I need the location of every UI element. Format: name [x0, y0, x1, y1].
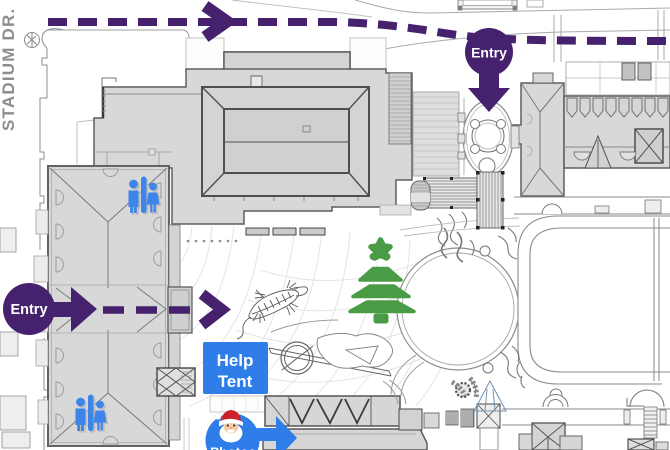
svg-text:Entry: Entry	[10, 302, 47, 318]
svg-text:Entry: Entry	[471, 45, 507, 61]
svg-text:Tent: Tent	[218, 372, 253, 391]
svg-text:Help: Help	[217, 351, 254, 370]
svg-text:Photos: Photos	[210, 445, 256, 450]
svg-text:STADIUM DR.: STADIUM DR.	[0, 8, 18, 131]
